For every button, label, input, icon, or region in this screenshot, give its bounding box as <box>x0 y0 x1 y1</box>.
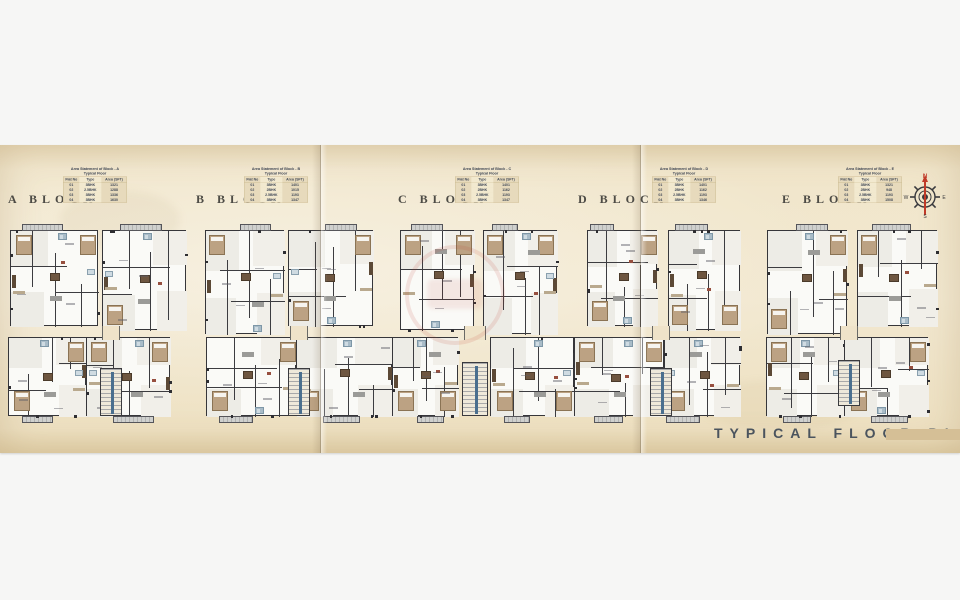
interior-wall <box>880 263 938 264</box>
stair-rail <box>299 372 302 414</box>
area-table-cell: 04 <box>63 197 79 202</box>
area-table-cell: 3BHK <box>79 197 101 202</box>
room-label-text <box>66 303 75 305</box>
door-opening <box>739 349 742 352</box>
bed <box>209 235 225 255</box>
bed <box>293 301 309 321</box>
bathroom <box>143 233 152 240</box>
room-label-text <box>896 362 905 364</box>
bathroom <box>135 340 144 347</box>
room <box>858 292 888 327</box>
bathroom <box>417 340 426 347</box>
room-label-text <box>604 370 613 372</box>
sofa <box>528 250 540 255</box>
bathroom <box>343 340 352 347</box>
interior-wall <box>791 338 792 408</box>
balcony <box>113 416 154 423</box>
interior-wall <box>359 389 393 390</box>
room <box>768 231 802 271</box>
bed <box>538 235 554 255</box>
area-table-grid: Flat NoTypeArea (SFT)013BHK1321022.5BHK1… <box>63 177 127 203</box>
balcony <box>796 224 829 231</box>
area-table-cell: 1347 <box>282 197 307 202</box>
floorplan-unit <box>296 337 392 416</box>
room-label-text <box>721 407 730 409</box>
kitchen-counter <box>671 294 683 297</box>
balcony <box>871 416 908 423</box>
area-table-subtitle: Typical Floor <box>652 171 716 175</box>
room-label-text <box>805 346 814 348</box>
bed <box>646 342 662 362</box>
kitchen-counter <box>769 387 781 390</box>
interior-wall <box>625 383 626 417</box>
bed-pillow <box>648 344 660 348</box>
wardrobe <box>576 362 580 375</box>
stairwell <box>650 368 672 416</box>
room-label-text <box>602 373 611 375</box>
toilet <box>524 235 527 239</box>
room-label-text <box>258 383 267 385</box>
sofa <box>613 296 625 301</box>
bed <box>14 391 30 411</box>
wardrobe <box>369 262 373 275</box>
tv-unit <box>909 366 913 369</box>
floorplan-unit <box>490 337 574 416</box>
area-table-cell: 1347 <box>493 197 518 202</box>
interior-wall <box>335 364 393 365</box>
kitchen-counter <box>727 384 739 387</box>
corridor-connector <box>840 326 858 340</box>
toilet <box>807 235 810 239</box>
interior-wall <box>103 267 170 268</box>
wardrobe <box>859 264 863 277</box>
interior-wall <box>413 338 414 381</box>
wardrobe <box>394 375 398 388</box>
room-label-text <box>706 260 715 262</box>
room-label-text <box>782 398 791 400</box>
interior-wall <box>833 271 834 335</box>
bed-pillow <box>499 393 511 397</box>
room <box>714 385 741 417</box>
bed-pillow <box>211 237 223 241</box>
sofa <box>808 250 820 255</box>
toilet <box>42 342 45 346</box>
door-opening <box>271 415 274 418</box>
room-label-text <box>897 238 906 240</box>
area-table-cell: 04 <box>838 197 854 202</box>
tv-unit <box>710 384 714 387</box>
room-label-text <box>19 399 28 401</box>
svg-text:S: S <box>923 214 927 219</box>
svg-text:W: W <box>904 195 909 201</box>
door-opening <box>36 415 39 418</box>
compass-rose-icon: NESW <box>903 171 947 219</box>
area-table-grid: Flat NoTypeArea (SFT)013BHK1401022BHK116… <box>455 177 519 203</box>
area-table-grid: Flat NoTypeArea (SFT)013BHK1321022BHK948… <box>838 177 902 203</box>
tv-unit <box>905 271 909 274</box>
tv-unit <box>534 292 538 295</box>
door-opening <box>839 415 842 418</box>
interior-wall <box>708 274 709 331</box>
room-label-text <box>344 356 353 358</box>
door-opening <box>840 230 843 233</box>
sofa <box>690 352 702 357</box>
area-table-cell: 04 <box>652 197 668 202</box>
tv-unit <box>267 372 271 375</box>
door-opening <box>556 261 559 264</box>
dining-table <box>611 374 621 382</box>
room-label-text <box>222 283 231 285</box>
svg-text:E: E <box>942 195 946 201</box>
balcony <box>325 224 358 231</box>
bed-pillow <box>154 344 166 348</box>
bed-pillow <box>16 393 28 397</box>
bed <box>398 391 414 411</box>
room <box>491 338 526 368</box>
bed-pillow <box>109 307 121 311</box>
toilet <box>696 342 699 346</box>
door-opening <box>371 415 374 418</box>
bathroom <box>291 269 299 275</box>
door-opening <box>363 325 366 328</box>
interior-wall <box>858 296 911 297</box>
balcony <box>323 416 361 423</box>
kitchen-counter <box>834 293 846 296</box>
toilet <box>60 235 63 239</box>
room-label-text <box>327 269 336 271</box>
door-opening <box>231 415 234 418</box>
room-label-text <box>139 275 148 277</box>
kitchen-counter <box>445 382 457 385</box>
corridor-connector <box>652 326 670 340</box>
room-label-text <box>496 256 505 258</box>
sofa <box>429 352 441 357</box>
door-opening <box>10 308 13 311</box>
room <box>355 338 393 365</box>
area-table-cell: 3BHK <box>260 197 282 202</box>
tv-unit <box>158 282 162 285</box>
interior-wall <box>507 266 558 267</box>
door-opening <box>97 312 100 315</box>
interior-wall <box>813 231 814 317</box>
interior-wall <box>55 292 99 293</box>
room-label-text <box>926 317 935 319</box>
door-opening <box>908 230 911 233</box>
sofa <box>138 299 150 304</box>
door-opening <box>893 230 896 233</box>
bed <box>861 235 877 255</box>
dining-table <box>43 373 53 381</box>
bed <box>672 305 688 325</box>
room-label-text <box>65 243 74 245</box>
door-opening <box>668 271 671 274</box>
bed-pillow <box>458 237 470 241</box>
toilet <box>902 319 905 323</box>
interior-wall <box>393 367 420 368</box>
bathroom <box>75 370 83 376</box>
kitchen-counter <box>577 382 589 385</box>
door-opening <box>701 230 704 233</box>
bed-pillow <box>540 237 552 241</box>
door-opening <box>420 415 423 418</box>
interior-wall <box>59 363 87 364</box>
room-label-text <box>878 367 887 369</box>
stairwell <box>100 368 122 416</box>
room-label-text <box>236 305 245 307</box>
door-opening <box>799 415 802 418</box>
door-opening <box>283 251 286 254</box>
bed-pillow <box>18 237 30 241</box>
dining-table <box>619 273 629 281</box>
bed-pillow <box>400 393 412 397</box>
room <box>141 385 171 417</box>
floorplan-unit <box>767 230 847 334</box>
area-table-inner: Area Statement of Block - DTypical Floor… <box>652 167 716 203</box>
balcony <box>872 224 911 231</box>
room-label-text <box>263 398 272 400</box>
room-label-text <box>119 260 128 262</box>
bed <box>440 391 456 411</box>
floorplan-unit <box>668 230 740 330</box>
room-label-text <box>681 311 690 313</box>
dining-table <box>799 372 809 380</box>
kitchen-counter <box>73 388 85 391</box>
kitchen-counter <box>924 284 936 287</box>
bed-pillow <box>407 237 419 241</box>
sofa <box>614 392 626 397</box>
room <box>899 385 929 417</box>
interior-wall <box>220 270 285 271</box>
dining-table <box>122 373 132 381</box>
interior-wall <box>55 253 56 327</box>
door-opening <box>330 415 333 418</box>
balcony <box>22 224 63 231</box>
room-label-text <box>17 294 26 296</box>
bed <box>771 342 787 362</box>
area-table-subtitle: Typical Floor <box>63 171 127 175</box>
bathroom <box>522 233 531 240</box>
balcony <box>240 224 271 231</box>
area-table-inner: Area Statement of Block - CTypical Floor… <box>455 167 519 203</box>
wardrobe <box>768 363 772 376</box>
toilet <box>879 409 882 413</box>
wardrobe <box>492 369 496 382</box>
bed-pillow <box>671 393 683 397</box>
bed-pillow <box>773 311 785 315</box>
door-opening <box>169 381 172 384</box>
area-table-d: Area Statement of Block - DTypical Floor… <box>652 167 716 219</box>
toilet <box>145 235 148 239</box>
toilet <box>536 342 539 346</box>
room-label-text <box>598 402 607 404</box>
bed <box>107 305 123 325</box>
door-opening <box>587 289 590 292</box>
area-table-a: Area Statement of Block - ATypical Floor… <box>63 167 127 219</box>
floor-plan-sheet: A BLOCKArea Statement of Block - ATypica… <box>0 0 960 600</box>
toilet <box>137 342 140 346</box>
toilet <box>626 342 629 346</box>
interior-wall <box>207 368 277 369</box>
bed <box>771 309 787 329</box>
bathroom <box>273 273 281 279</box>
bed-pillow <box>214 393 226 397</box>
room <box>153 231 187 265</box>
door-opening <box>392 389 395 392</box>
toilet <box>257 409 260 413</box>
bed-pillow <box>594 303 606 307</box>
room-label-text <box>553 380 562 382</box>
door-opening <box>927 380 930 383</box>
door-opening <box>457 351 460 354</box>
room-label-text <box>517 286 526 288</box>
bathroom <box>534 340 543 347</box>
door-opening <box>927 343 930 346</box>
room-label-text <box>521 375 530 377</box>
balcony <box>783 416 811 423</box>
bathroom <box>255 407 264 414</box>
interior-wall <box>513 348 514 417</box>
door-opening <box>309 230 312 233</box>
kitchen-counter <box>360 288 372 291</box>
door-opening <box>936 308 939 311</box>
toilet <box>255 327 258 331</box>
bed-pillow <box>282 344 294 348</box>
bed-pillow <box>912 344 924 348</box>
wardrobe <box>843 269 847 282</box>
bed <box>830 235 846 255</box>
balcony <box>411 224 444 231</box>
interior-wall <box>602 338 603 375</box>
bathroom <box>89 370 97 376</box>
area-table-subtitle: Typical Floor <box>455 171 519 175</box>
interior-wall <box>784 393 845 394</box>
sofa <box>803 352 815 357</box>
bed-pillow <box>82 237 94 241</box>
door-opening <box>359 325 362 328</box>
interior-wall <box>422 388 459 389</box>
interior-wall <box>768 267 802 268</box>
door-opening <box>205 319 208 322</box>
area-table-cell: 04 <box>455 197 471 202</box>
svg-text:N: N <box>923 174 927 180</box>
dining-table <box>515 272 525 280</box>
interior-wall <box>811 356 812 417</box>
bed <box>592 301 608 321</box>
corridor-connector <box>290 326 308 340</box>
room <box>712 231 741 265</box>
bed <box>910 342 926 362</box>
area-table-c: Area Statement of Block - CTypical Floor… <box>455 167 519 219</box>
room-label-text <box>422 376 431 378</box>
room <box>11 292 44 327</box>
door-opening <box>541 337 544 340</box>
dining-table <box>340 369 350 377</box>
room-label-text <box>800 309 809 311</box>
bed <box>212 391 228 411</box>
interior-wall <box>333 247 334 327</box>
bed <box>280 342 296 362</box>
area-table-inner: Area Statement of Block - BTypical Floor… <box>244 167 308 203</box>
corridor-connector <box>102 326 120 340</box>
interior-wall <box>81 284 82 327</box>
bathroom <box>623 317 632 324</box>
title-accent-bar <box>886 429 960 440</box>
dining-table <box>243 371 253 379</box>
door-opening <box>16 230 19 233</box>
bed <box>91 342 107 362</box>
interior-wall <box>129 231 130 289</box>
interior-wall <box>790 291 791 335</box>
dining-table <box>802 274 812 282</box>
floorplan-unit <box>8 337 86 416</box>
room <box>9 338 42 368</box>
bed <box>152 342 168 362</box>
interior-wall <box>207 387 282 388</box>
bathroom <box>546 273 554 279</box>
tv-unit <box>707 288 711 291</box>
door-opening <box>846 283 849 286</box>
room-label-text <box>700 345 709 347</box>
floorplan-unit <box>392 337 458 416</box>
tv-unit <box>625 375 629 378</box>
interior-wall <box>426 338 427 401</box>
tv-unit <box>61 261 65 264</box>
wardrobe <box>553 278 557 291</box>
interior-wall <box>103 294 132 295</box>
stairwell <box>462 362 488 416</box>
door-opening <box>707 230 710 233</box>
stair-rail <box>475 366 478 414</box>
room-label-text <box>255 268 264 270</box>
balcony <box>590 224 614 231</box>
interior-wall <box>689 338 690 405</box>
interior-wall <box>819 299 848 300</box>
kitchen-counter <box>105 287 117 290</box>
bathroom <box>900 317 909 324</box>
floorplan-unit <box>766 337 844 416</box>
room-label-text <box>696 288 705 290</box>
room <box>206 298 236 335</box>
floorplan-unit <box>10 230 98 326</box>
stair-rail <box>849 364 852 404</box>
bathroom <box>87 269 95 275</box>
room-label-text <box>814 302 823 304</box>
area-table-grid: Flat NoTypeArea (SFT)013BHK1401022BHK101… <box>244 177 308 203</box>
area-table-cell: 3BHK <box>471 197 493 202</box>
room-label-text <box>621 244 630 246</box>
bed <box>80 235 96 255</box>
floorplan-unit <box>102 230 186 330</box>
door-opening <box>574 387 577 390</box>
bed-pillow <box>295 303 307 307</box>
door-opening <box>927 410 930 413</box>
bathroom <box>704 233 713 240</box>
bed <box>556 391 572 411</box>
interior-wall <box>539 267 540 335</box>
room-label-text <box>687 381 696 383</box>
bathroom <box>917 370 925 376</box>
bed-pillow <box>93 344 105 348</box>
bed-pillow <box>558 393 570 397</box>
interior-wall <box>669 264 697 265</box>
floorplan-unit <box>857 230 937 326</box>
toilet <box>706 235 709 239</box>
bed-pillow <box>832 237 844 241</box>
bathroom <box>563 370 571 376</box>
bathroom <box>877 407 886 414</box>
room-label-text <box>54 408 63 410</box>
bed-pillow <box>489 237 501 241</box>
